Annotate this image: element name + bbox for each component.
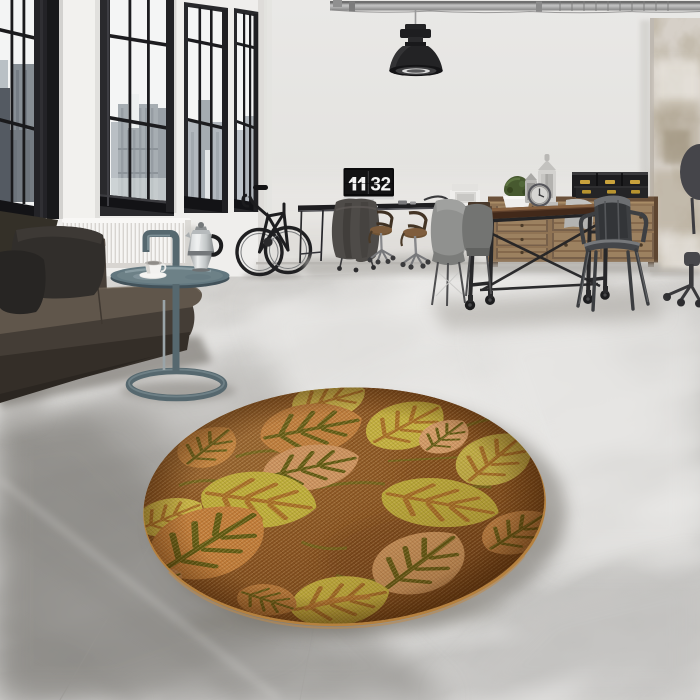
- svg-text:32: 32: [370, 175, 390, 196]
